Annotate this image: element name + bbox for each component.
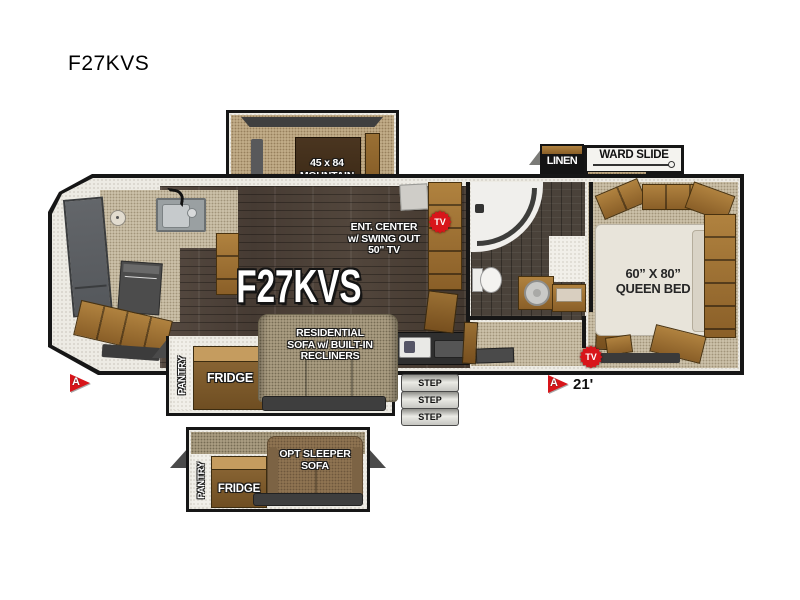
opt-slide-wing-right	[368, 448, 386, 468]
fridge-label: FRIDGE	[194, 371, 266, 385]
shower-head-icon	[475, 204, 484, 213]
opt-sofa-base	[253, 493, 363, 506]
ent-center-label-line1: ENT. CENTER	[325, 222, 443, 234]
ent-center-label: ENT. CENTER w/ SWING OUT 50" TV	[325, 222, 443, 257]
ceiling-vent-center	[116, 216, 119, 219]
opt-fridge-top	[212, 457, 266, 470]
marker-flag-front-label: A	[72, 376, 80, 388]
opt-pantry: PANTRY	[192, 454, 210, 506]
entry-step-1-label: STEP	[402, 375, 458, 391]
kitchen-stove-panel	[123, 264, 159, 274]
ward-slideout: WARD SLIDE	[584, 145, 684, 174]
kitchen-stove-line	[125, 276, 157, 279]
model-name: F27KVS	[226, 263, 372, 309]
entertainment-center-lower	[424, 290, 459, 333]
linen-closet: LINEN	[540, 144, 584, 176]
overhead-cabinet	[399, 183, 428, 210]
kitchen-sink-basin	[162, 204, 190, 228]
island-sink	[399, 337, 431, 358]
floorplan-canvas: F27KVS 45 x 84 MOUNTAIN DINETTE LINEN WA…	[0, 0, 800, 600]
length-label: 21'	[573, 376, 593, 393]
bedroom-wall	[589, 182, 593, 312]
kitchen-stove	[117, 261, 163, 316]
dinette-label-line1: 45 x 84	[257, 157, 397, 170]
sofa-label-line3: RECLINERS	[266, 351, 394, 363]
opt-pantry-label: PANTRY	[196, 462, 207, 499]
marker-flag-front: A	[70, 374, 90, 392]
linen-label: LINEN	[542, 155, 582, 167]
entry-step-3-label: STEP	[402, 409, 458, 425]
sofa-base	[262, 396, 386, 411]
bath-wall-stub	[582, 316, 586, 348]
fridge: FRIDGE	[193, 346, 267, 410]
ward-slide-label: WARD SLIDE	[587, 149, 681, 161]
fridge-top	[194, 347, 266, 362]
vanity-sink-drain	[533, 289, 541, 297]
sofa-label: RESIDENTIAL SOFA w/ BUILT-IN RECLINERS	[266, 328, 394, 363]
tv-badge-bedroom: TV	[580, 346, 602, 368]
island-sink-basin	[404, 341, 415, 353]
ward-slide-rail-end	[668, 161, 675, 168]
ward-slide-rail	[593, 164, 671, 166]
entry-step-3: STEP	[401, 408, 459, 426]
bath-pocket-door	[462, 322, 478, 365]
entry-step-1: STEP	[401, 374, 459, 392]
kitchen-sink-drain	[187, 208, 197, 218]
pantry: PANTRY	[172, 340, 192, 410]
hall-bench	[476, 347, 515, 363]
bed-label-line1: 60” X 80”	[597, 266, 709, 281]
kitchen-island	[392, 332, 470, 365]
vanity-counter-top	[556, 288, 582, 302]
entry-step-2-label: STEP	[402, 392, 458, 408]
bath-wall-left	[466, 182, 470, 322]
ent-center-label-line3: 50" TV	[325, 245, 443, 257]
bed-label: 60” X 80” QUEEN BED	[597, 266, 709, 296]
pantry-label: PANTRY	[177, 356, 188, 395]
tv-badge-living: TV	[429, 211, 451, 233]
opt-sofa-label: OPT SLEEPER SOFA	[269, 448, 361, 472]
marker-flag-rear: A	[548, 375, 568, 393]
linen-shelf	[542, 146, 582, 154]
opt-sofa-label-line2: SOFA	[269, 460, 361, 472]
model-name-text: F27KVS	[236, 259, 361, 313]
bedroom-wardrobe	[704, 214, 736, 338]
vanity-sink-bowl	[524, 280, 550, 306]
opt-sleeper-slideout: PANTRY FRIDGE OPT SLEEPER SOFA	[186, 427, 370, 512]
front-window-divider	[75, 284, 107, 289]
opt-sofa-label-line1: OPT SLEEPER	[269, 448, 361, 460]
bath-wall-bottom	[466, 316, 562, 320]
page-title: F27KVS	[68, 52, 149, 76]
bed-label-line2: QUEEN BED	[597, 281, 709, 296]
dinette-window	[241, 117, 383, 127]
bedroom-tv-console	[600, 353, 680, 363]
marker-flag-rear-label: A	[550, 377, 558, 389]
entry-step-2: STEP	[401, 391, 459, 409]
sofa-label-line1: RESIDENTIAL	[266, 328, 394, 340]
vanity-counter	[552, 284, 586, 312]
toilet-bowl	[480, 267, 502, 293]
ceiling-vent-icon	[110, 210, 126, 226]
vanity-corner	[549, 236, 585, 282]
tv-badge-living-label: TV	[429, 211, 451, 233]
tv-badge-bedroom-label: TV	[580, 346, 602, 368]
